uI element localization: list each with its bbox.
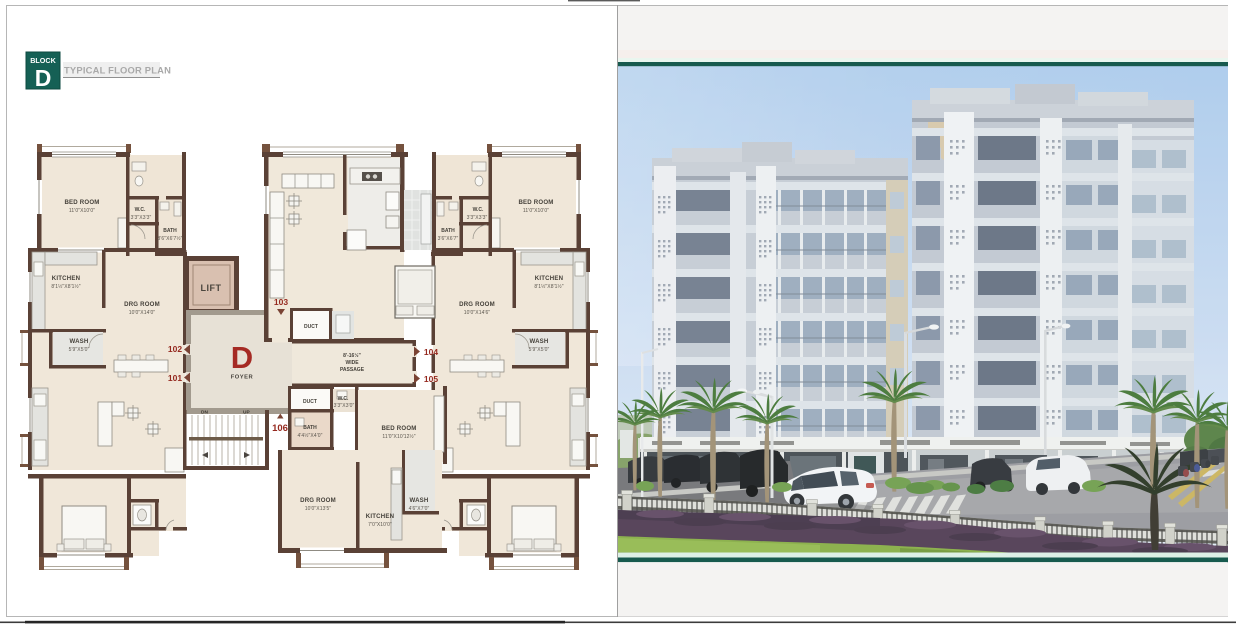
svg-text:DRG ROOM: DRG ROOM: [459, 301, 495, 308]
svg-text:W.C.: W.C.: [473, 207, 484, 213]
svg-text:FOYER: FOYER: [231, 375, 254, 381]
svg-text:102: 102: [168, 344, 182, 354]
svg-text:KITCHEN: KITCHEN: [366, 513, 394, 520]
svg-text:WASH: WASH: [529, 338, 548, 345]
svg-text:LIFT: LIFT: [201, 283, 222, 293]
svg-text:WIDE: WIDE: [345, 360, 359, 366]
svg-text:KITCHEN: KITCHEN: [535, 275, 563, 282]
svg-text:4'4½"X4'0": 4'4½"X4'0": [297, 432, 322, 439]
svg-text:7'0"X10'0": 7'0"X10'0": [368, 522, 392, 528]
svg-text:TYPICAL FLOOR PLAN: TYPICAL FLOOR PLAN: [64, 65, 171, 76]
svg-text:3'3"X3'3": 3'3"X3'3": [467, 215, 488, 221]
svg-text:8'1½"X8'1½": 8'1½"X8'1½": [534, 283, 563, 290]
svg-text:8'1½"X8'1½": 8'1½"X8'1½": [51, 283, 80, 290]
svg-text:WASH: WASH: [69, 338, 88, 345]
svg-text:BLOCK: BLOCK: [30, 56, 56, 65]
svg-text:UP: UP: [243, 410, 250, 416]
svg-text:BED ROOM: BED ROOM: [381, 425, 416, 432]
svg-text:3'6"X6'7": 3'6"X6'7": [438, 236, 459, 242]
svg-text:5'9"X5'0": 5'9"X5'0": [69, 347, 90, 353]
svg-text:11'0"X10'12½": 11'0"X10'12½": [382, 433, 415, 440]
svg-text:BATH: BATH: [303, 425, 317, 431]
svg-text:PASSAGE: PASSAGE: [340, 367, 365, 373]
svg-text:KITCHEN: KITCHEN: [52, 275, 80, 282]
svg-text:3'3"X3'3": 3'3"X3'3": [131, 215, 152, 221]
svg-text:4'6"X7'0": 4'6"X7'0": [409, 506, 430, 512]
svg-text:DUCT: DUCT: [303, 399, 317, 405]
svg-text:BATH: BATH: [441, 228, 455, 234]
svg-text:BED ROOM: BED ROOM: [518, 199, 553, 206]
svg-text:103: 103: [274, 297, 288, 307]
svg-text:5'9"X5'0": 5'9"X5'0": [529, 347, 550, 353]
svg-text:11'0"X10'0": 11'0"X10'0": [69, 208, 95, 214]
svg-text:D: D: [35, 65, 52, 91]
svg-text:8'-16½": 8'-16½": [343, 352, 361, 359]
svg-text:3'6"X6'7½": 3'6"X6'7½": [157, 235, 182, 242]
svg-text:WASH: WASH: [409, 497, 428, 504]
svg-text:10'0"X13'5": 10'0"X13'5": [305, 506, 332, 512]
svg-text:10'0"X14'6": 10'0"X14'6": [464, 310, 491, 316]
svg-text:BATH: BATH: [163, 228, 177, 234]
svg-text:106: 106: [272, 423, 288, 434]
svg-text:DUCT: DUCT: [304, 324, 318, 330]
svg-text:W.C.: W.C.: [135, 207, 146, 213]
svg-text:DN: DN: [201, 410, 208, 416]
svg-text:D: D: [231, 340, 253, 375]
svg-text:DRG ROOM: DRG ROOM: [124, 301, 160, 308]
svg-text:101: 101: [168, 373, 182, 383]
svg-text:10'0"X14'0": 10'0"X14'0": [129, 310, 156, 316]
svg-text:104: 104: [424, 347, 438, 357]
svg-text:W.C.: W.C.: [338, 396, 349, 402]
svg-text:DRG ROOM: DRG ROOM: [300, 497, 336, 504]
svg-text:BED ROOM: BED ROOM: [64, 199, 99, 206]
svg-text:11'0"X10'0": 11'0"X10'0": [523, 208, 549, 214]
svg-text:3'3"X3'0": 3'3"X3'0": [334, 403, 355, 409]
svg-text:105: 105: [424, 374, 438, 384]
